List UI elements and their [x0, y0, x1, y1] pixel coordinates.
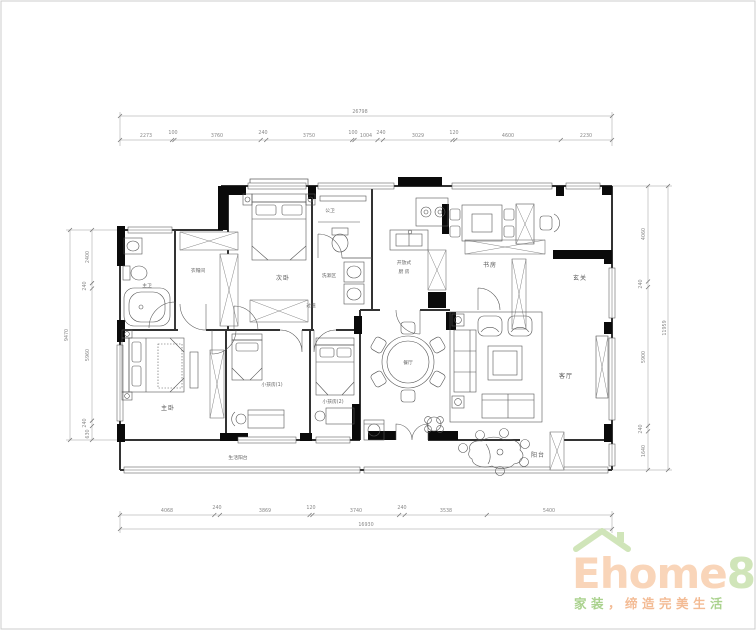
dim-right-seg: 240	[638, 424, 644, 433]
label-living: 客厅	[559, 372, 573, 380]
balcony-door	[396, 424, 550, 444]
page-border	[1, 1, 755, 629]
walls	[120, 179, 612, 470]
label-entry: 玄关	[573, 274, 587, 282]
roof-icon	[576, 531, 628, 549]
dim-bottom-seg: 3538	[440, 508, 452, 514]
plant	[425, 417, 444, 433]
watermark: Ehome8 家装，缔造完美生活	[572, 531, 755, 611]
label-study: 书房	[483, 261, 497, 269]
label-corridor: 过道	[306, 302, 316, 309]
label-leisure-balcony: 阳台	[531, 451, 545, 459]
dim-top-seg: 3029	[412, 133, 424, 139]
label-cloakroom: 衣帽间	[191, 267, 206, 274]
label-master-bedroom: 主卧	[161, 404, 175, 412]
dim-left-seg: 5960	[85, 349, 91, 361]
dim-left-seg: 2400	[85, 251, 91, 263]
label-master-bath: 主卫	[142, 282, 152, 289]
dim-bottom-total: 16930	[358, 522, 373, 528]
dim-bottom-seg: 3740	[350, 508, 362, 514]
dim-top-seg: 240	[376, 130, 385, 136]
dim-top-total: 26798	[352, 109, 367, 115]
dim-top-seg: 2230	[580, 133, 592, 139]
floorplan-drawing: 26798 2273 100 3760 240 3750 100 1004 24…	[0, 0, 756, 630]
dim-left-seg: 240	[82, 281, 88, 290]
master-bath-fixtures	[123, 238, 175, 328]
label-kids-room2: 小孩房(2)	[322, 398, 343, 405]
dim-bottom-seg: 120	[306, 505, 315, 511]
label-guest-bath: 公卫	[325, 208, 335, 214]
dim-top-seg: 120	[449, 130, 458, 136]
dim-top-seg: 100	[348, 130, 357, 136]
study-furniture	[450, 204, 560, 310]
dim-bottom-seg: 4068	[161, 508, 173, 514]
dim-bottom-seg: 240	[397, 505, 406, 511]
dim-top-seg: 3750	[303, 133, 315, 139]
dim-bottom-seg: 240	[212, 505, 221, 511]
brand-logo: Ehome8	[572, 549, 755, 598]
dim-right-seg: 1640	[641, 445, 647, 457]
label-dining: 餐厅	[403, 359, 413, 366]
kids-room2-furniture	[314, 330, 354, 424]
floorplan-sheet: 26798 2273 100 3760 240 3750 100 1004 24…	[0, 0, 756, 630]
label-kitchen-2: 厨 房	[398, 268, 409, 275]
dimension-chain-left: 2400 240 5960 240 630 9470	[64, 228, 120, 442]
dim-top-seg: 240	[258, 130, 267, 136]
dim-right-seg: 4060	[641, 228, 647, 240]
dim-top-seg: 100	[168, 130, 177, 136]
label-bedroom2: 次卧	[276, 274, 290, 282]
dim-top-seg: 4600	[502, 133, 514, 139]
dim-left-seg: 630	[85, 429, 91, 438]
dimension-chain-bottom: 4068 240 3869 120 3740 240 3538 5400 169…	[118, 505, 614, 533]
label-kitchen-1: 开放式	[397, 259, 412, 266]
kids-room1-furniture	[232, 330, 302, 428]
dim-right-seg: 5900	[641, 351, 647, 363]
dim-right-total: 11959	[662, 320, 668, 335]
cloakroom-door	[180, 304, 206, 330]
dim-bottom-seg: 3869	[259, 508, 271, 514]
dim-left-total: 9470	[64, 329, 70, 341]
label-wash-area: 洗漱区	[322, 272, 337, 279]
label-kids-room1: 小孩房(1)	[261, 381, 282, 388]
dim-left-seg: 240	[82, 418, 88, 427]
dim-top-seg: 2273	[140, 133, 152, 139]
living-room-furniture	[450, 312, 608, 422]
dimension-chain-right: 4060 240 5900 240 1640 11959	[612, 184, 672, 472]
dimension-chain-top: 26798 2273 100 3760 240 3750 100 1004 24…	[118, 109, 614, 146]
label-service-balcony: 生活阳台	[228, 454, 247, 461]
dim-right-seg: 240	[638, 279, 644, 288]
dining-furniture	[364, 322, 446, 440]
dim-top-seg: 3760	[211, 133, 223, 139]
brand-tagline: 家装，缔造完美生活	[574, 596, 727, 611]
dim-top-seg: 1004	[360, 133, 372, 139]
dim-bottom-seg: 5400	[543, 508, 555, 514]
